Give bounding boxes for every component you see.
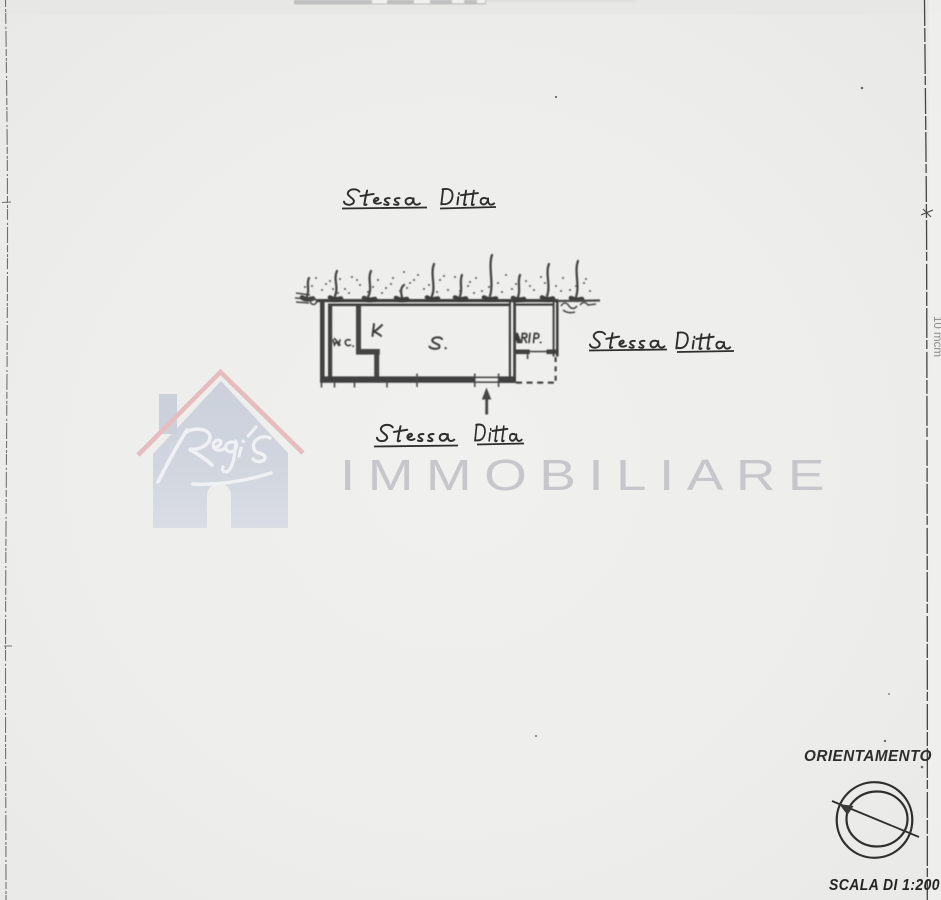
svg-text:10 mcm: 10 mcm	[931, 316, 941, 357]
svg-text:ORIENTAMENTO: ORIENTAMENTO	[804, 748, 932, 765]
svg-text:IMMOBILIARE: IMMOBILIARE	[340, 451, 837, 500]
svg-text:SCALA DI 1:200: SCALA DI 1:200	[829, 877, 940, 894]
